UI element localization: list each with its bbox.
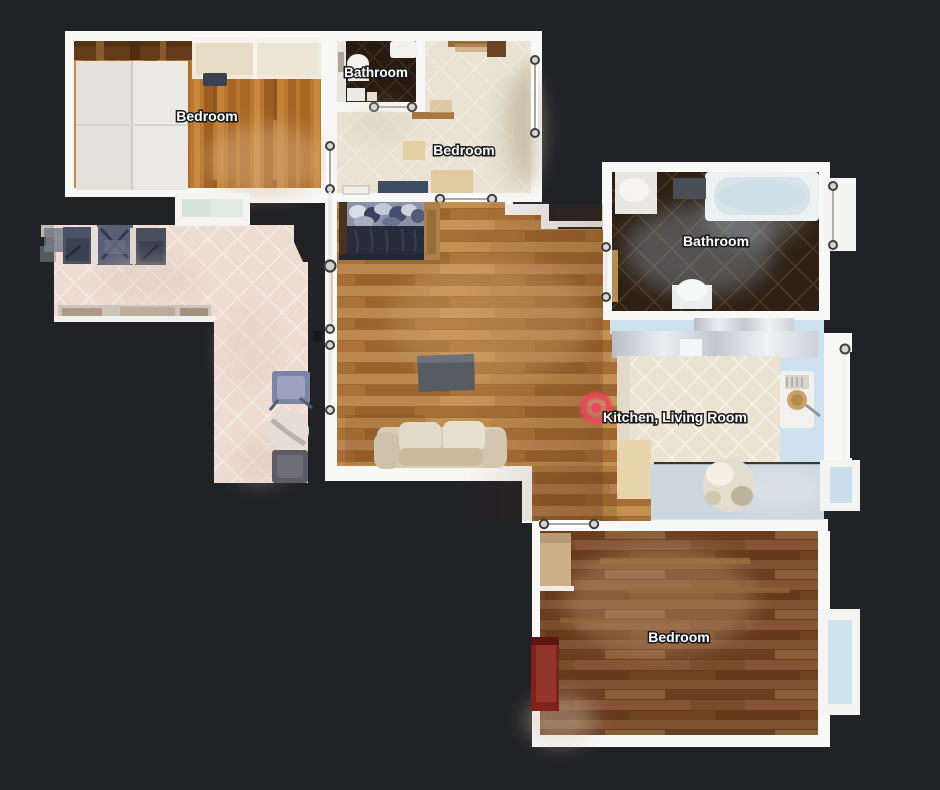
svg-text:Bedroom: Bedroom (433, 142, 494, 158)
svg-text:Bedroom: Bedroom (176, 108, 237, 124)
svg-text:Bedroom: Bedroom (648, 629, 709, 645)
svg-text:Bathroom: Bathroom (344, 65, 408, 80)
svg-text:Kitchen, Living Room: Kitchen, Living Room (603, 409, 747, 425)
svg-text:Bathroom: Bathroom (683, 233, 749, 249)
